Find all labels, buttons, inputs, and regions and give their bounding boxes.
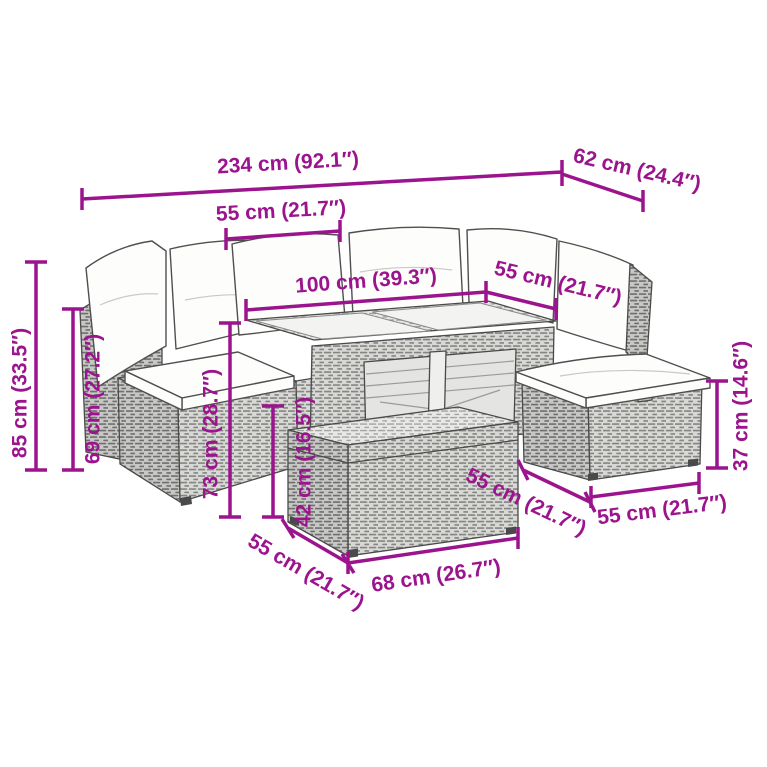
ottoman-stool [516, 354, 710, 481]
dimension-label: 68 cm (26.7″) [370, 555, 502, 597]
dimension-label: 55 cm (21.7″) [215, 196, 346, 226]
dimension-label: 42 cm (16.5″) [293, 397, 316, 527]
product-dimension-image: 234 cm (92.1″) 62 cm (24.4″) 55 cm (21.7… [0, 0, 767, 767]
dimension-stool-width: 55 cm (21.7″) [591, 472, 728, 529]
dimension-label: 37 cm (14.6″) [730, 341, 753, 471]
dimension-label: 234 cm (92.1″) [216, 148, 359, 179]
dimension-label: 55 cm (21.7″) [596, 491, 728, 530]
dimension-stool-height: 37 cm (14.6″) [706, 341, 753, 471]
dimension-side-depth: 62 cm (24.4″) [562, 144, 703, 212]
dimension-label: 62 cm (24.4″) [571, 144, 703, 196]
dimension-label: 85 cm (33.5″) [9, 328, 32, 458]
dimension-label: 69 cm (27.2″) [82, 334, 105, 464]
dimension-label: 73 cm (28.7″) [200, 369, 223, 499]
dimension-total-height: 85 cm (33.5″) [9, 262, 48, 470]
furniture-line-art: 234 cm (92.1″) 62 cm (24.4″) 55 cm (21.7… [0, 0, 767, 767]
